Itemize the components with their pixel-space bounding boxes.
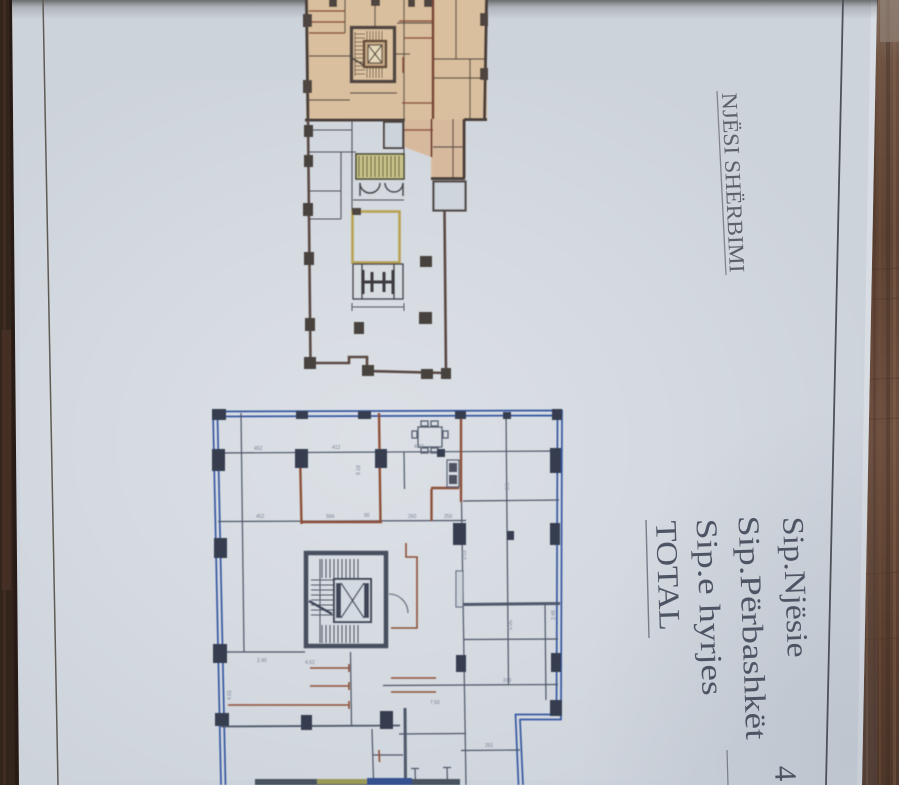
- svg-text:584: 584: [326, 514, 335, 520]
- svg-text:TOTAL: TOTAL: [649, 520, 686, 631]
- svg-text:4: 4: [768, 765, 804, 782]
- svg-text:261: 261: [485, 743, 494, 749]
- svg-text:4.01: 4.01: [227, 690, 233, 700]
- svg-text:7.50: 7.50: [430, 700, 440, 706]
- svg-text:4.02: 4.02: [414, 444, 424, 450]
- svg-text:452: 452: [254, 446, 263, 452]
- svg-text:3.03: 3.03: [462, 550, 468, 560]
- svg-text:Sip.Njësie: Sip.Njësie: [776, 516, 814, 658]
- svg-text:5.05: 5.05: [508, 620, 514, 630]
- svg-text:412: 412: [332, 445, 341, 451]
- svg-text:3.5: 3.5: [505, 483, 511, 490]
- svg-text:4.52: 4.52: [305, 660, 315, 666]
- svg-text:243: 243: [503, 678, 512, 684]
- svg-text:2.48: 2.48: [551, 610, 557, 620]
- svg-text:260: 260: [408, 514, 417, 520]
- svg-text:90: 90: [364, 513, 370, 519]
- svg-text:Sip.e hyrjes: Sip.e hyrjes: [690, 518, 729, 696]
- svg-text:9.18: 9.18: [356, 465, 362, 475]
- svg-text:452: 452: [256, 514, 265, 520]
- svg-text:2.40: 2.40: [257, 658, 267, 664]
- svg-text:250: 250: [444, 514, 453, 520]
